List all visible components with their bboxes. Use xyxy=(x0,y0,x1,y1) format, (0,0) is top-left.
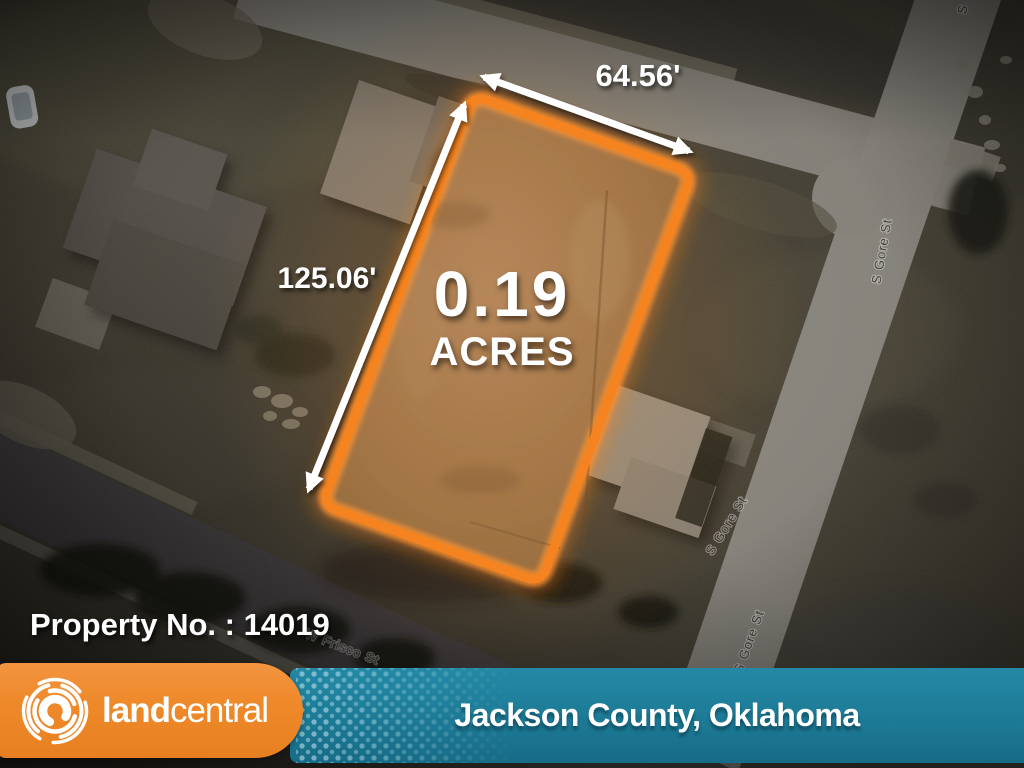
acreage-unit: ACRES xyxy=(392,332,612,372)
brand-wordmark: landcentral xyxy=(102,691,268,731)
acreage-value: 0.19 xyxy=(392,262,612,326)
brand-central: central xyxy=(170,691,268,730)
property-listing-image: S S Gore St S Gore St S Gore St W Frisco… xyxy=(0,0,1024,768)
property-number: Property No. : 14019 xyxy=(30,609,330,640)
length-dimension-label: 125.06' xyxy=(252,264,402,294)
brand-land: land xyxy=(102,691,170,730)
landcentral-logo-icon xyxy=(20,676,90,746)
location-banner: Jackson County, Oklahoma xyxy=(290,668,1024,763)
width-dimension-label: 64.56' xyxy=(558,60,718,91)
acreage-label: 0.19 ACRES xyxy=(392,262,612,372)
location-text: Jackson County, Oklahoma xyxy=(454,697,859,734)
satellite-map: S S Gore St S Gore St S Gore St W Frisco… xyxy=(0,0,1024,768)
brand-banner: landcentral xyxy=(0,663,303,758)
